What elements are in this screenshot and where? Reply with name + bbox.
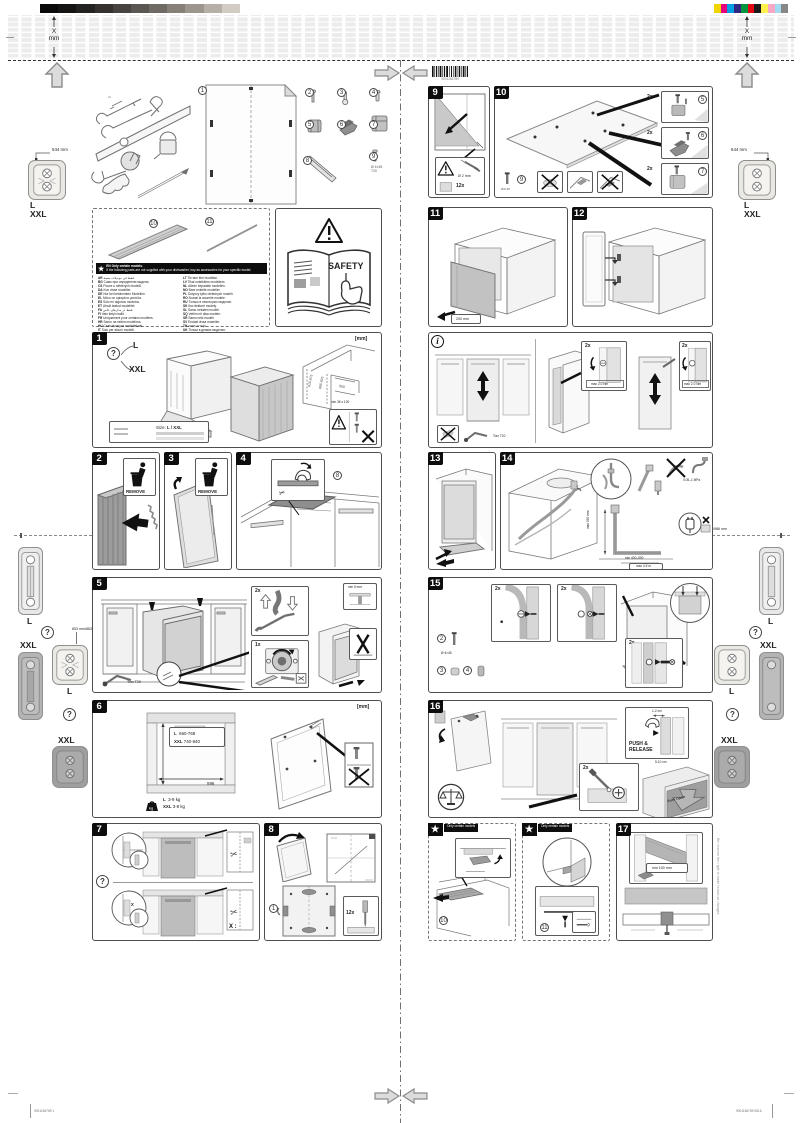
part-4-icon bbox=[473, 662, 489, 680]
calibration-swatch bbox=[734, 4, 741, 13]
template-on-door-illustration bbox=[277, 884, 339, 938]
question-mark-badge: ? bbox=[107, 347, 120, 360]
label-bar bbox=[114, 433, 128, 435]
step-panel-1: 1 ? L XXL Size: L / XXL [mm] bbox=[92, 332, 382, 448]
footer-doc-number-left: 9001156789 1 bbox=[34, 1110, 54, 1114]
no-kink-icon bbox=[665, 457, 687, 479]
tap-icon bbox=[689, 457, 709, 477]
footer-doc-number-right: 9001156789 0816 bbox=[736, 1110, 761, 1114]
step-panel-17: 17 min 100 mm bbox=[616, 823, 713, 941]
only-certain-models-tab: Only certain models bbox=[444, 824, 478, 832]
step-panel-4: 4 8 ✂ bbox=[236, 452, 382, 570]
screw-2-icon bbox=[447, 630, 463, 650]
rating-label-inset: Size: L / XXL bbox=[109, 421, 209, 443]
part-5-badge: 5 bbox=[698, 95, 707, 104]
step-number: 16 bbox=[428, 700, 443, 713]
remove-label: REMOVE bbox=[126, 489, 145, 494]
calibration-swatch bbox=[222, 4, 240, 13]
calibration-swatch bbox=[76, 4, 94, 13]
question-mark-badge: ? bbox=[96, 875, 109, 888]
min-gap-inset: min 5 mm bbox=[343, 583, 377, 610]
door-height-label: L 660-768 XXL 740-840 bbox=[169, 727, 225, 747]
question-mark-badge: ? bbox=[726, 708, 739, 721]
part-7-badge: 7 bbox=[698, 167, 707, 176]
hinge-screw-inset-b: 2x max 2.0 Nm bbox=[679, 341, 711, 391]
part-1-badge: 1 bbox=[269, 904, 278, 913]
torque-label: max 2.0 Nm bbox=[591, 383, 608, 387]
step-panel-12: 12 bbox=[572, 207, 713, 327]
registration-tick-right bbox=[788, 37, 796, 38]
screw-9-icon: Ø4×45 bbox=[499, 171, 517, 191]
flap-size-xxl-left: XXL bbox=[30, 210, 47, 219]
step-panel-10: 10 2x 5 2x 6 2x 7 9 Ø4×45 bbox=[494, 86, 713, 198]
svg-text:865-925: 865-925 bbox=[318, 376, 325, 389]
flap-rear-l-label-right: L bbox=[768, 617, 773, 626]
part-4-badge: 4 bbox=[463, 666, 472, 675]
part-3-badge: 3 bbox=[437, 666, 446, 675]
calibration-swatch bbox=[167, 4, 185, 13]
remove-icon-box: REMOVE bbox=[195, 458, 228, 496]
star-badge: ★ bbox=[522, 823, 537, 836]
dim-200mm-box: 200 mm bbox=[451, 314, 481, 324]
remove-label: REMOVE bbox=[198, 489, 217, 494]
flap-sq-xxl-label: XXL bbox=[58, 736, 75, 745]
max-950-label: max 950 mm bbox=[587, 511, 591, 529]
step-number: 12 bbox=[572, 207, 587, 220]
question-mark-badge: ? bbox=[749, 626, 762, 639]
language-column-right: LT Tik tam tikri modeliai.LV Tikai notei… bbox=[183, 276, 267, 336]
step-number: 8 bbox=[264, 823, 279, 836]
tools-illustration: 2x bbox=[86, 84, 198, 204]
calibration-swatch bbox=[95, 4, 113, 13]
dim-l-code: L bbox=[174, 731, 177, 736]
info-panel-door-adjust: i Torx T20 2x max 2 bbox=[428, 332, 713, 448]
step-panel-2: 2 REMOVE bbox=[92, 452, 160, 570]
rod-install-inset: 11 bbox=[535, 886, 599, 936]
part-4-badge: 4 bbox=[369, 88, 378, 97]
svg-text:✂: ✂ bbox=[278, 487, 287, 498]
corner-zoom-circle bbox=[541, 836, 593, 888]
barcode bbox=[432, 66, 468, 77]
screw-in-inset: 12x bbox=[343, 896, 379, 936]
center-fold-line bbox=[400, 60, 401, 1123]
appliance-top-icon-xxl-mid-right bbox=[714, 746, 750, 788]
step-number: 11 bbox=[428, 207, 443, 220]
gap-check-variant-b: x ✂X : bbox=[109, 886, 257, 938]
step-number: 1 bbox=[92, 332, 107, 345]
appliance-rear-icon-l bbox=[18, 547, 43, 615]
barcode-caption: 9001156789 bbox=[432, 78, 468, 82]
side-fix-inset-b: 2x bbox=[557, 584, 617, 642]
step-panel-16: 16 2x bbox=[428, 700, 713, 818]
warning-triangle-icon bbox=[314, 217, 344, 244]
flap-rear-xxl-label-right: XXL bbox=[760, 641, 777, 650]
part-2-badge: 2 bbox=[305, 88, 314, 97]
screw-spec: Ø 4×45 bbox=[441, 652, 452, 656]
parts-10-11-illustration bbox=[99, 213, 265, 261]
registration-tick-bottom-left bbox=[8, 1093, 18, 1094]
glue-band-hatch bbox=[8, 15, 794, 59]
step-panel-3: 3 REMOVE bbox=[164, 452, 232, 570]
choice-lines bbox=[117, 343, 137, 373]
appliance-top-icon-right bbox=[738, 160, 776, 200]
fold-converge-arrows-bottom bbox=[374, 1087, 428, 1105]
part-9-badge: 9 bbox=[517, 175, 526, 184]
svg-text:Ø4×45: Ø4×45 bbox=[501, 187, 510, 191]
svg-text:x: x bbox=[131, 902, 134, 908]
niche-note: min 36 x 100 bbox=[331, 401, 349, 405]
bracket-5-inset: 5 bbox=[661, 91, 709, 123]
registration-tick-bottom-right bbox=[784, 1093, 794, 1094]
production-side-note: We reserve the right to make technical c… bbox=[716, 838, 720, 938]
template-sheet-illustration bbox=[205, 84, 297, 205]
trap-zoom-circle bbox=[589, 457, 633, 501]
svg-text:550: 550 bbox=[339, 384, 345, 389]
top-fix-zoom-circle bbox=[669, 582, 711, 624]
calibration-swatch bbox=[131, 4, 149, 13]
label-bar bbox=[114, 428, 128, 430]
step-panel-14: 14 0.05–1 MPa bbox=[500, 452, 713, 570]
weight-xxl-value: 3-8 kg bbox=[173, 804, 185, 809]
hinge-6-inset: 6 bbox=[661, 127, 709, 159]
push-release-inset: 1-2 cm PUSH &RELEASE bbox=[625, 707, 689, 759]
calibration-swatch bbox=[58, 4, 76, 13]
svg-text:2x: 2x bbox=[108, 95, 112, 99]
plinth-dim-label: min 100 mm bbox=[652, 866, 672, 870]
svg-text:kg: kg bbox=[149, 806, 153, 811]
dim-xxl-value: 740-840 bbox=[184, 739, 200, 744]
safety-panel: SAFETY bbox=[275, 208, 382, 327]
plinth-panel-inset: min 100 mm bbox=[629, 832, 703, 884]
count-12x: 12x bbox=[456, 184, 464, 190]
only-certain-models-header: ★ EN Only certain models. If the followi… bbox=[96, 263, 267, 274]
step-number: 6 bbox=[92, 700, 107, 713]
part-2-badge: 2 bbox=[437, 634, 446, 643]
appliance-top-icon-left bbox=[28, 160, 66, 200]
safety-label: SAFETY bbox=[328, 261, 364, 271]
pressure-label: 0.05–1 MPa bbox=[683, 479, 700, 483]
bracket-on-door-illustration bbox=[433, 709, 495, 773]
part-11-badge: 11 bbox=[205, 217, 214, 226]
flip-door-illustration bbox=[269, 830, 321, 882]
flap-leader-tick-right bbox=[780, 533, 782, 538]
dim-xxl-code: XXL bbox=[174, 739, 183, 744]
template-fold-illustration bbox=[433, 92, 487, 152]
registration-tick-left bbox=[6, 37, 14, 38]
step-panel-8: 8 1 12x bbox=[264, 823, 382, 941]
grayscale-calibration-bar bbox=[40, 4, 258, 13]
flap-rear-xxl-label: XXL bbox=[20, 641, 37, 650]
step-number: 3 bbox=[164, 452, 179, 465]
drill-diameter-label: Ø 2 mm bbox=[458, 174, 471, 178]
count-2x: 2x bbox=[647, 167, 653, 173]
push-label-2: RELEASE bbox=[629, 747, 653, 753]
flap-sq-l-label: L bbox=[67, 687, 72, 696]
side-fix-inset-a: 2x bbox=[491, 584, 551, 642]
star-badge: ★ bbox=[428, 823, 443, 836]
part-5-badge: 5 bbox=[305, 120, 314, 129]
label-bar bbox=[156, 432, 204, 435]
instruction-sheet: Xmm Xmm 9001156789 544 mm L XXL 544 mm L… bbox=[0, 0, 802, 1123]
drill-warning-inset: Ø 2 mm 12x bbox=[435, 157, 485, 195]
part-9-badge: 9 bbox=[369, 152, 378, 161]
part-11-badge: 11 bbox=[540, 923, 549, 932]
calibration-swatch bbox=[754, 4, 761, 13]
step-panel-13: 13 bbox=[428, 452, 496, 570]
variant-divider bbox=[113, 882, 253, 883]
appliance-rear-icon-l-right bbox=[759, 547, 784, 615]
optional-panel-a: ★ Only certain models 10 bbox=[428, 823, 516, 941]
svg-text:X :: X : bbox=[229, 924, 237, 930]
x-dim-label-right: Xmm bbox=[737, 28, 757, 42]
template-marking-illustration bbox=[323, 830, 379, 886]
step-panel-7: 7 ? ✂ x ✂X : bbox=[92, 823, 260, 941]
part-1-badge: 1 bbox=[198, 86, 207, 95]
part-6-badge: 6 bbox=[337, 120, 346, 129]
calibration-swatch bbox=[748, 4, 755, 13]
star-icon: ★ bbox=[96, 265, 106, 273]
dim-200mm: 200 mm bbox=[456, 317, 469, 321]
hose-ends-icons bbox=[633, 463, 663, 497]
calibration-swatch bbox=[113, 4, 131, 13]
footer-divider-left bbox=[30, 1104, 31, 1118]
max-45m-label: max 4.5 m bbox=[636, 565, 651, 569]
appliance-top-icon-l-mid bbox=[52, 645, 88, 685]
dishwasher-closed-illustration bbox=[221, 359, 301, 445]
foot-adjust-inset-front: 1x bbox=[251, 640, 309, 688]
part-8-badge: 8 bbox=[303, 156, 312, 165]
info-badge: i bbox=[431, 335, 444, 348]
torx-t20-label: Torx T20 bbox=[493, 435, 505, 439]
label-bar bbox=[156, 437, 204, 440]
step-panel-6: 6 [mm] L 660-768 XXL 740-840 596 kg L 3-… bbox=[92, 700, 382, 818]
rod-clip-subinset bbox=[572, 911, 596, 933]
plinth-mount-illustration bbox=[621, 886, 711, 938]
step-number: 7 bbox=[92, 823, 107, 836]
calibration-swatch bbox=[781, 4, 788, 13]
part-7-badge: 7 bbox=[369, 120, 378, 129]
supplied-parts-illustration: Ø 4×45T20 bbox=[302, 86, 394, 204]
calibration-swatch bbox=[721, 4, 728, 13]
torque-label: max 2.0 Nm bbox=[684, 383, 701, 387]
only-certain-models-tab: Only certain models bbox=[538, 824, 572, 832]
door-front-adjust bbox=[633, 353, 677, 437]
step-panel-11: 11 200 mm bbox=[428, 207, 568, 327]
flap-leader-mid-left bbox=[14, 535, 92, 536]
part-10-badge: 10 bbox=[149, 219, 158, 228]
step-panel-15: 15 2x 2x bbox=[428, 577, 713, 693]
fold-up-arrow-right bbox=[734, 62, 760, 88]
bracket-7-inset: 7 bbox=[661, 163, 709, 195]
apply-strip-inset: ✂ bbox=[271, 459, 325, 501]
torx-key-icon bbox=[101, 670, 141, 688]
mm-units-note: [mm] bbox=[357, 705, 369, 711]
language-column-left: AR فقط في موديلات معينة.BG Само при опре… bbox=[98, 276, 180, 336]
header-line-2: If the following parts are not supplied … bbox=[106, 268, 251, 272]
calibration-swatch bbox=[727, 4, 734, 13]
calibration-swatch bbox=[240, 4, 258, 13]
calibration-swatch bbox=[204, 4, 222, 13]
part-10-badge: 10 bbox=[439, 916, 448, 925]
step-number: 14 bbox=[500, 452, 515, 465]
appliance-rear-icon-xxl-right bbox=[759, 652, 784, 720]
flap-dim-853-tick bbox=[76, 632, 77, 644]
cmyk-calibration-bar bbox=[714, 4, 788, 13]
part-3-badge: 3 bbox=[337, 88, 346, 97]
footer-divider-right bbox=[772, 1104, 773, 1118]
language-panel: 10 11 ★ EN Only certain models. If the f… bbox=[92, 208, 270, 327]
front-panel-dims-illustration bbox=[145, 711, 237, 795]
bracket-position-inset bbox=[567, 171, 593, 193]
step-panel-5: 5 2x 1x bbox=[92, 577, 382, 693]
fold-up-arrow-left bbox=[44, 62, 70, 88]
step-number: 17 bbox=[616, 823, 631, 836]
flap-rear-l-label: L bbox=[27, 617, 32, 626]
count-2x: 2x bbox=[647, 131, 653, 137]
remove-icon-box: REMOVE bbox=[123, 458, 156, 496]
plinth-dim-box: min 100 mm bbox=[646, 863, 688, 873]
clip-section-inset bbox=[455, 838, 511, 878]
door-hang-illustration bbox=[437, 218, 561, 322]
calibration-swatch bbox=[149, 4, 167, 13]
weight-xxl-code: XXL bbox=[163, 804, 172, 809]
door-height-front-illustration bbox=[433, 351, 533, 425]
svg-text:T20: T20 bbox=[371, 169, 377, 173]
calibration-swatch bbox=[185, 4, 203, 13]
step-number: 9 bbox=[428, 86, 443, 99]
warning-inset bbox=[329, 409, 377, 445]
step-number: 2 bbox=[92, 452, 107, 465]
weight-l-value: 3-9 kg bbox=[168, 797, 180, 802]
base-screw-inset: 2x bbox=[579, 763, 639, 811]
size-label: Size: bbox=[156, 425, 166, 430]
gap-check-variant-a: ✂ bbox=[109, 828, 257, 880]
svg-text:815-875: 815-875 bbox=[307, 374, 314, 387]
weight-icon: kg bbox=[145, 797, 159, 813]
calibration-swatch bbox=[40, 4, 58, 13]
flap-sq-xxl-label-right: XXL bbox=[721, 736, 738, 745]
part-3-icon bbox=[447, 662, 463, 680]
appliance-top-icon-xxl-mid bbox=[52, 746, 88, 788]
flap-sq-l-label-right: L bbox=[729, 687, 734, 696]
section-divider bbox=[535, 339, 536, 443]
weight-l-code: L bbox=[163, 797, 166, 802]
count-2x: 2x bbox=[647, 95, 653, 101]
plinth-install-illustration bbox=[432, 461, 494, 567]
part-8-badge: 8 bbox=[333, 471, 342, 480]
hinge-screw-inset-a: 2x max 2.0 Nm bbox=[581, 341, 627, 391]
calibration-swatch bbox=[761, 4, 768, 13]
foot-adjust-inset-rear: 2x bbox=[251, 586, 309, 636]
appliance-top-icon-l-mid-right bbox=[714, 645, 750, 685]
front-fix-inset: 2x bbox=[625, 638, 683, 688]
fold-converge-arrows-top bbox=[374, 64, 428, 82]
door-hook-illustration bbox=[579, 218, 709, 322]
calibration-swatch bbox=[741, 4, 748, 13]
torx-key-icon bbox=[463, 429, 493, 443]
step-number: 4 bbox=[236, 452, 251, 465]
door-mounting-illustration bbox=[261, 713, 377, 813]
step-number: 10 bbox=[494, 86, 509, 99]
balance-scale-icon bbox=[437, 783, 465, 811]
flap-leader-tick-left bbox=[20, 533, 22, 538]
optional-panel-b: ★ Only certain models 11 bbox=[522, 823, 610, 941]
part-6-badge: 6 bbox=[698, 131, 707, 140]
dim-l-value: 660-768 bbox=[179, 731, 195, 736]
x-dim-label-left: Xmm bbox=[44, 28, 64, 42]
appliance-rear-icon-xxl bbox=[18, 652, 43, 720]
auto-open-door-illustration bbox=[633, 765, 711, 817]
safety-book-icon bbox=[284, 247, 374, 319]
calibration-swatch bbox=[768, 4, 775, 13]
size-value: L / XXL bbox=[167, 425, 182, 430]
step-number: 15 bbox=[428, 577, 443, 590]
min-400-label: min 400–500 bbox=[625, 557, 643, 561]
flap-leader-mid-right bbox=[712, 535, 790, 536]
torx-t20-label: Torx T20 bbox=[127, 680, 141, 684]
wrong-position-inset bbox=[597, 171, 623, 193]
step-number: 5 bbox=[92, 577, 107, 590]
calibration-swatch bbox=[775, 4, 782, 13]
no-power-tool-inset bbox=[437, 425, 459, 443]
grounded-plug-icon bbox=[677, 509, 711, 539]
step-number: 13 bbox=[428, 452, 443, 465]
flap-size-xxl-right: XXL bbox=[744, 210, 761, 219]
calibration-swatch bbox=[714, 4, 721, 13]
no-glue-inset bbox=[537, 171, 563, 193]
width-596-label: 596 bbox=[207, 781, 214, 786]
question-mark-badge: ? bbox=[63, 708, 76, 721]
question-mark-badge: ? bbox=[41, 626, 54, 639]
step-panel-9: 9 Ø 2 mm 12x bbox=[428, 86, 490, 198]
no-tilt-inset bbox=[349, 628, 377, 660]
